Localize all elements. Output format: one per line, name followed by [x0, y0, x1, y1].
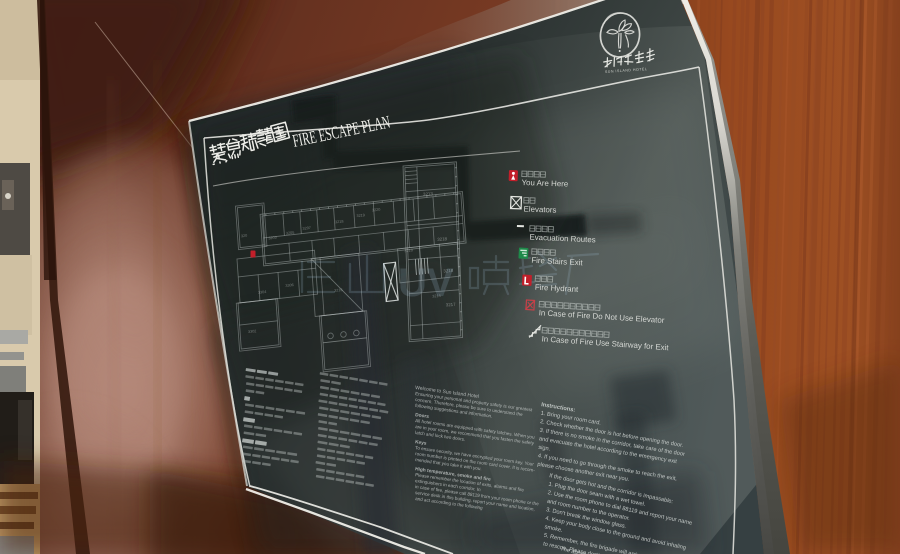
svg-text:UV: UV	[398, 261, 454, 305]
svg-text:320: 320	[241, 234, 248, 239]
svg-text:Elevators: Elevators	[523, 204, 556, 214]
svg-text:You Are Here: You Are Here	[521, 178, 569, 189]
svg-text:3213: 3213	[423, 191, 434, 197]
svg-text:3218: 3218	[437, 236, 448, 242]
